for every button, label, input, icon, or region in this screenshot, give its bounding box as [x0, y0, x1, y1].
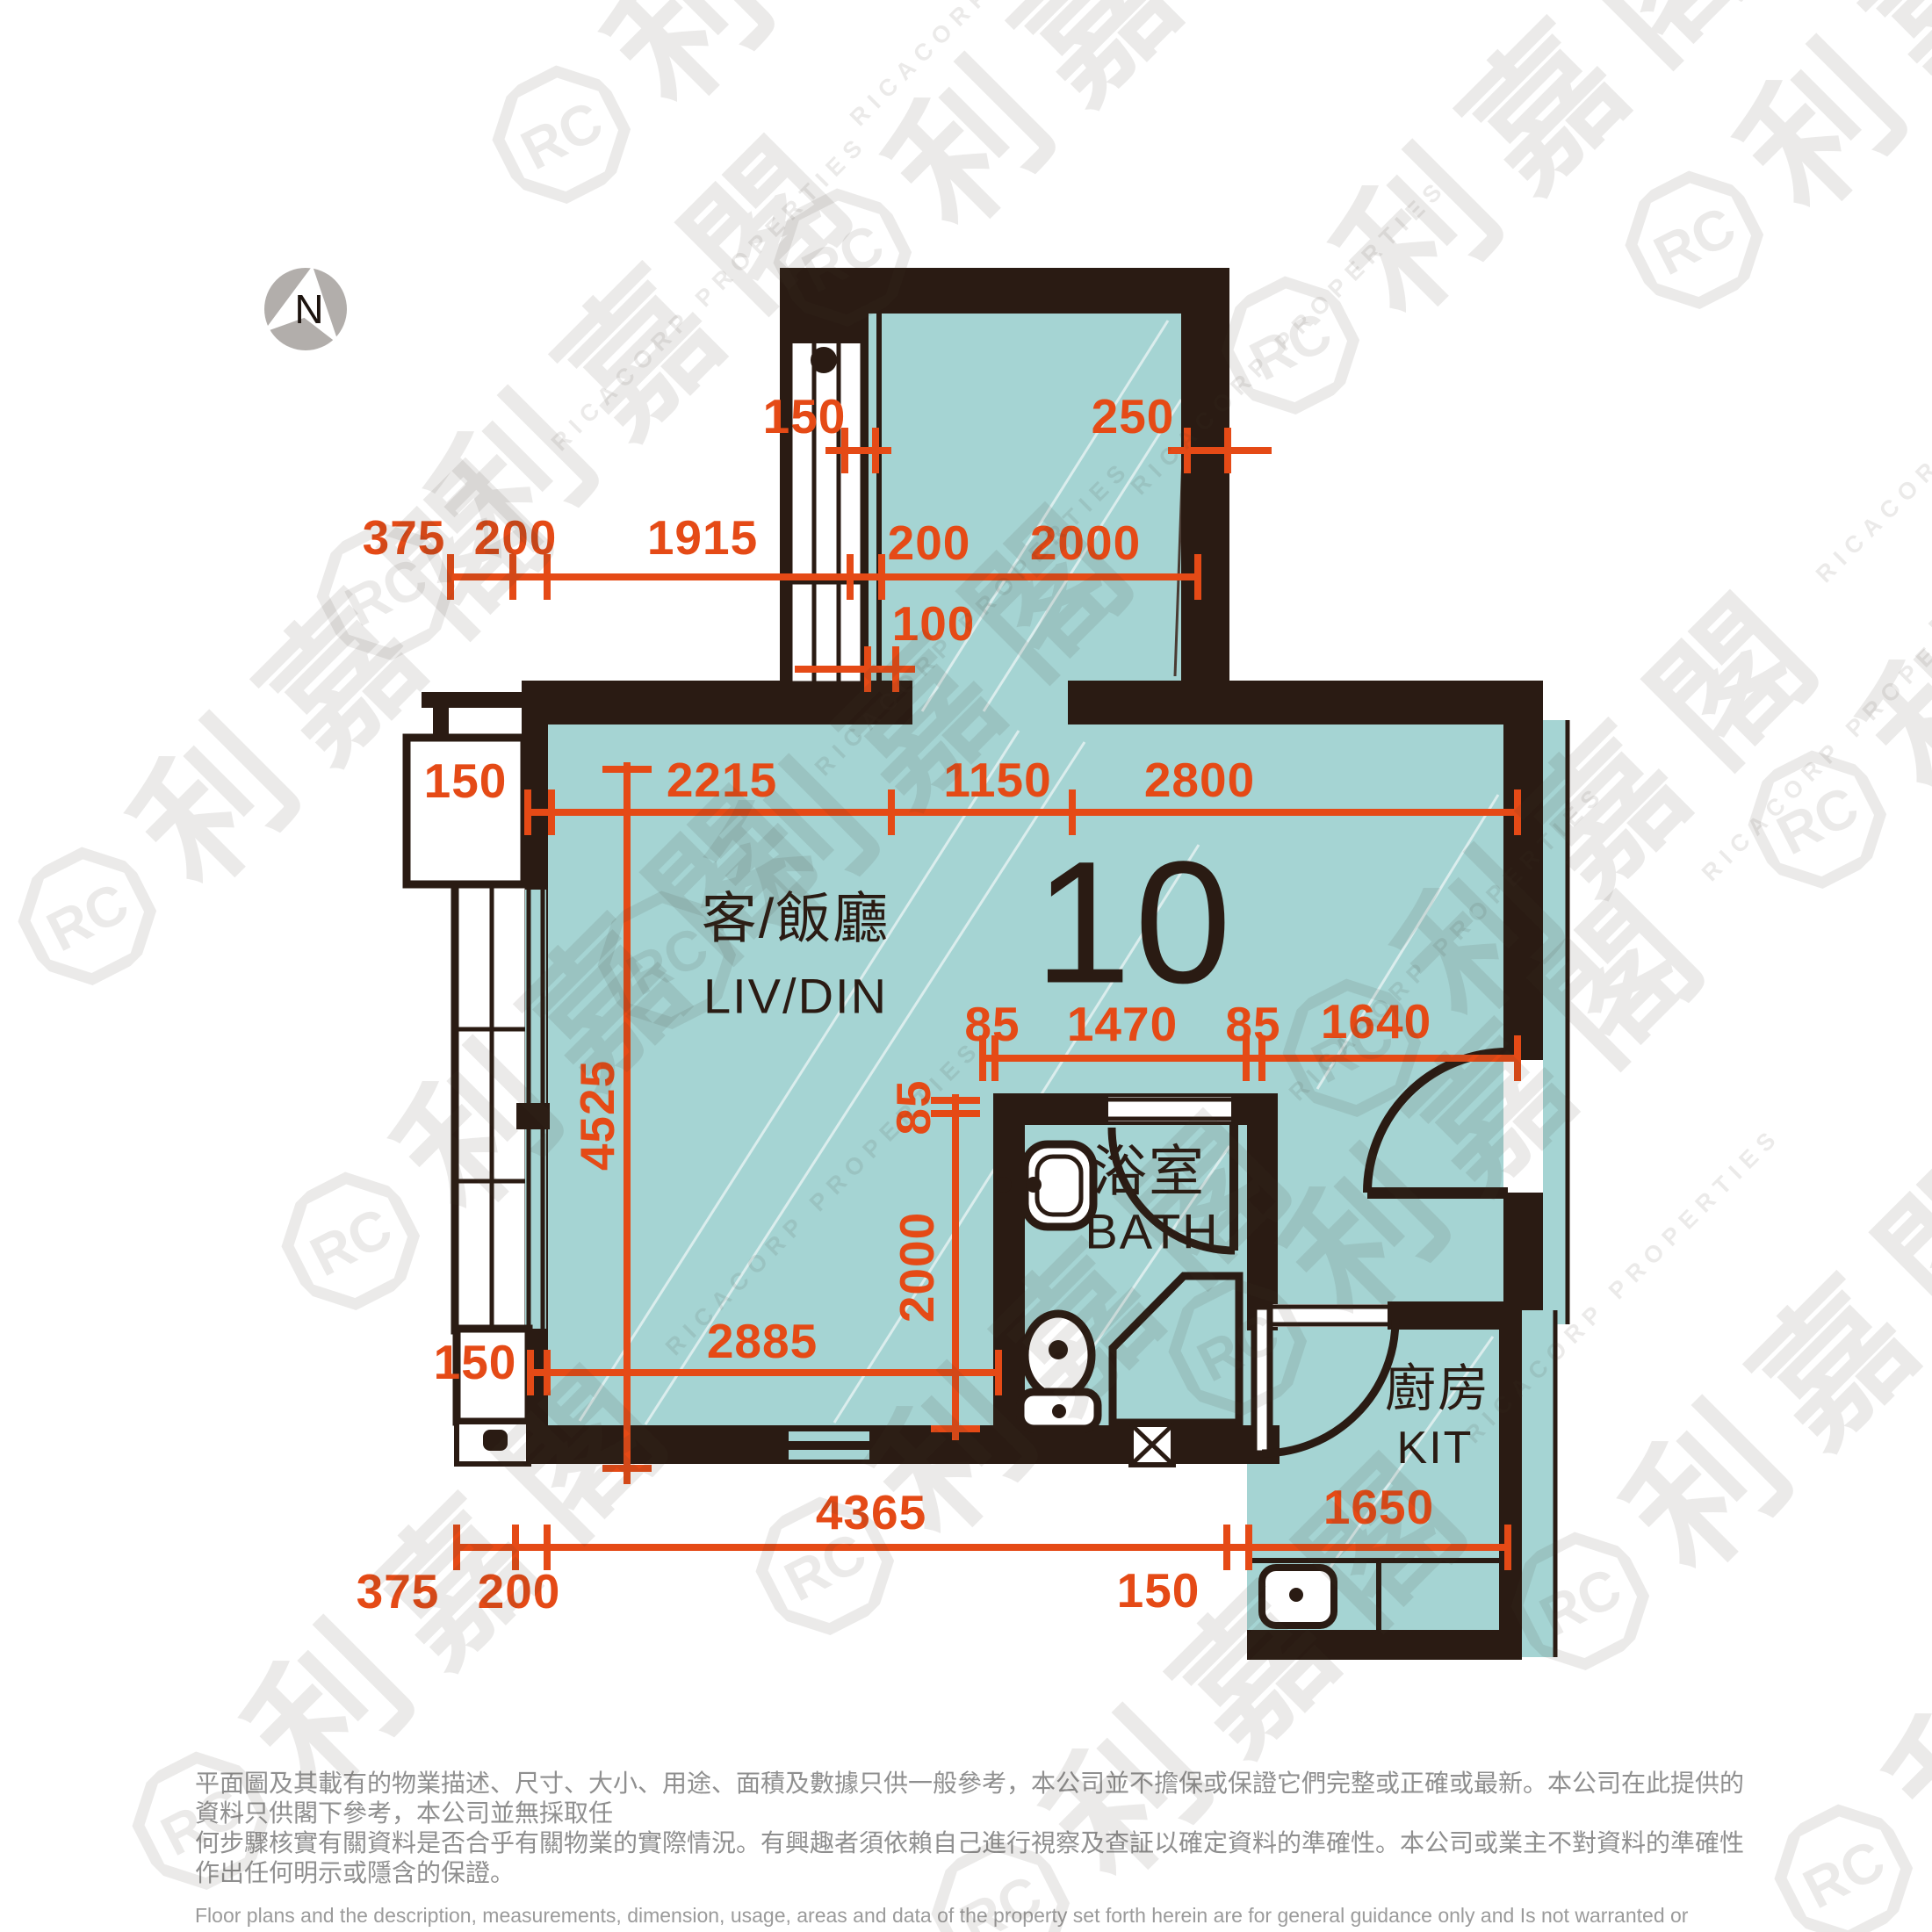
bathroom-label-zh: 浴室 — [1092, 1128, 1206, 1207]
dim-label-250-top: 250 — [1092, 388, 1175, 444]
unit-number: 10 — [1034, 823, 1235, 1022]
disclaimer-en-line1: Floor plans and the description, measure… — [195, 1902, 1758, 1932]
dim-label-150-top: 150 — [763, 388, 847, 444]
disclaimer-zh-line2: 何步驟核實有關資料是否合乎有關物業的實際情況。有興趣者須依賴自己進行視察及查証以… — [195, 1828, 1758, 1888]
disclaimer-zh-line1: 平面圖及其載有的物業描述、尺寸、大小、用途、面積及數據只供一般參考，本公司並不擔… — [195, 1769, 1758, 1828]
floor-drain — [1131, 1424, 1173, 1465]
dim-label-150-bottom: 150 — [1117, 1562, 1200, 1618]
dim-label-375-bottom: 375 — [357, 1563, 440, 1619]
floor-plan-drawing — [0, 0, 1932, 1932]
dim-label-200a-row2: 200 — [474, 509, 558, 566]
kitchen-label-en: KIT — [1397, 1422, 1474, 1474]
dim-label-375-row2: 375 — [363, 509, 446, 566]
dim-label-150-left-top: 150 — [424, 753, 508, 809]
dim-label-4365: 4365 — [816, 1484, 926, 1540]
dim-label-2000-vert: 2000 — [889, 1212, 945, 1323]
dim-label-2800: 2800 — [1144, 752, 1255, 808]
dim-label-150-left-bottom: 150 — [434, 1334, 517, 1390]
dim-label-85-vert: 85 — [885, 1079, 941, 1135]
disclaimer: 平面圖及其載有的物業描述、尺寸、大小、用途、面積及數據只供一般參考，本公司並不擔… — [195, 1769, 1758, 1932]
dim-label-4525: 4525 — [569, 1060, 625, 1171]
toilet — [1020, 1314, 1098, 1429]
living-dining-label-zh: 客/飯廳 — [702, 875, 890, 955]
dim-label-2000-row2: 2000 — [1030, 515, 1141, 571]
window-bay-left — [455, 884, 550, 1330]
dim-label-1640: 1640 — [1321, 993, 1431, 1049]
dim-label-1650: 1650 — [1323, 1479, 1434, 1535]
floor-plan-page: N 150 250 375 200 1915 200 2000 100 150 … — [0, 0, 1932, 1932]
kitchen-label-zh: 廚房 — [1385, 1347, 1490, 1421]
window-bay-top — [789, 314, 879, 685]
dim-label-2215: 2215 — [667, 752, 777, 808]
dim-label-1915: 1915 — [647, 509, 758, 566]
dim-label-1150: 1150 — [943, 752, 1051, 808]
north-letter: N — [294, 285, 323, 333]
dim-label-200-bottom: 200 — [478, 1563, 561, 1619]
dim-label-85a: 85 — [964, 996, 1020, 1052]
dim-label-100: 100 — [892, 595, 976, 652]
dim-label-2885: 2885 — [707, 1313, 818, 1369]
bathroom-label-en: BATH — [1085, 1203, 1219, 1260]
living-dining-label-en: LIV/DIN — [703, 968, 888, 1025]
dim-label-200b-row2: 200 — [888, 515, 971, 571]
